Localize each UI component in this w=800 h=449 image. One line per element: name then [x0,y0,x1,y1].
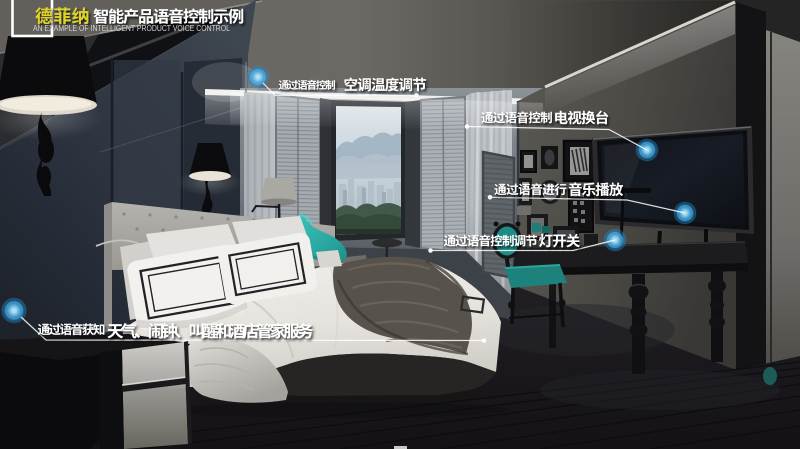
svg-text:AN EXAMPLE OF INTELLIGENT PROD: AN EXAMPLE OF INTELLIGENT PRODUCT VOICE … [33,24,230,33]
